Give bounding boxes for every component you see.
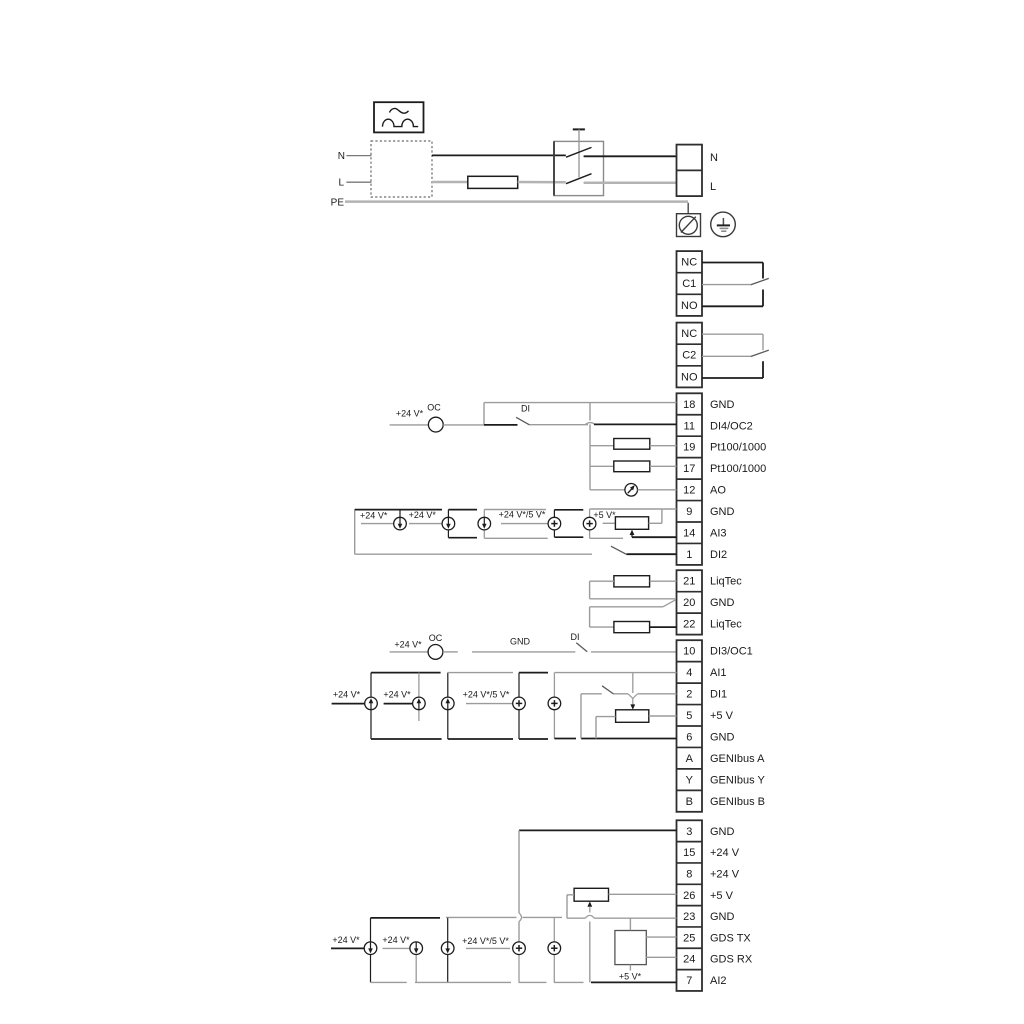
svg-text:N: N bbox=[710, 152, 718, 164]
svg-text:GENIbus A: GENIbus A bbox=[710, 753, 765, 765]
svg-text:GENIbus Y: GENIbus Y bbox=[710, 774, 765, 786]
svg-text:DI3/OC1: DI3/OC1 bbox=[710, 646, 753, 658]
svg-text:+24 V*: +24 V* bbox=[333, 690, 361, 700]
svg-text:GND: GND bbox=[710, 506, 735, 518]
svg-text:10: 10 bbox=[683, 646, 695, 658]
svg-text:4: 4 bbox=[686, 667, 692, 679]
svg-text:25: 25 bbox=[683, 932, 695, 944]
svg-text:NO: NO bbox=[681, 371, 698, 383]
svg-text:DI1: DI1 bbox=[710, 689, 727, 701]
svg-text:Y: Y bbox=[686, 774, 694, 786]
svg-text:NC: NC bbox=[681, 257, 697, 269]
svg-text:+5 V*: +5 V* bbox=[593, 510, 616, 520]
svg-text:+5 V: +5 V bbox=[710, 710, 734, 722]
svg-text:AO: AO bbox=[710, 485, 726, 497]
svg-text:+5 V*: +5 V* bbox=[619, 972, 642, 982]
svg-text:C2: C2 bbox=[682, 350, 696, 362]
svg-text:9: 9 bbox=[686, 506, 692, 518]
svg-text:21: 21 bbox=[683, 576, 695, 588]
svg-text:20: 20 bbox=[683, 597, 695, 609]
svg-text:N: N bbox=[338, 151, 345, 162]
svg-text:LiqTec: LiqTec bbox=[710, 619, 742, 631]
svg-text:+24 V*: +24 V* bbox=[360, 511, 388, 521]
svg-text:LiqTec: LiqTec bbox=[710, 576, 742, 588]
svg-text:+24 V*: +24 V* bbox=[383, 690, 411, 700]
svg-text:PE: PE bbox=[331, 198, 345, 209]
svg-text:8: 8 bbox=[686, 868, 692, 880]
svg-text:5: 5 bbox=[686, 710, 692, 722]
svg-text:+24 V*: +24 V* bbox=[396, 408, 424, 418]
svg-text:OC: OC bbox=[429, 633, 443, 643]
svg-text:+24 V*/5 V*: +24 V*/5 V* bbox=[463, 690, 510, 700]
svg-text:+24 V*: +24 V* bbox=[332, 935, 360, 945]
svg-text:+24 V: +24 V bbox=[710, 847, 740, 859]
svg-text:19: 19 bbox=[683, 442, 695, 454]
svg-text:DI: DI bbox=[571, 632, 580, 642]
svg-text:A: A bbox=[686, 753, 694, 765]
svg-text:AI2: AI2 bbox=[710, 975, 727, 987]
svg-text:GND: GND bbox=[710, 826, 735, 838]
svg-text:GND: GND bbox=[510, 636, 531, 646]
svg-text:DI: DI bbox=[521, 404, 530, 414]
svg-text:+24 V*/5 V*: +24 V*/5 V* bbox=[499, 510, 546, 520]
svg-text:12: 12 bbox=[683, 485, 695, 497]
svg-text:B: B bbox=[686, 796, 693, 808]
svg-text:GND: GND bbox=[710, 399, 735, 411]
svg-text:26: 26 bbox=[683, 890, 695, 902]
svg-text:14: 14 bbox=[683, 528, 695, 540]
svg-text:GDS RX: GDS RX bbox=[710, 954, 753, 966]
svg-text:+5 V: +5 V bbox=[710, 890, 734, 902]
svg-text:17: 17 bbox=[683, 463, 695, 475]
svg-text:+24 V*/5 V*: +24 V*/5 V* bbox=[462, 936, 509, 946]
svg-text:OC: OC bbox=[427, 402, 441, 412]
svg-text:2: 2 bbox=[686, 689, 692, 701]
svg-text:22: 22 bbox=[683, 619, 695, 631]
svg-text:GDS TX: GDS TX bbox=[710, 932, 751, 944]
svg-text:Pt100/1000: Pt100/1000 bbox=[710, 463, 766, 475]
svg-text:6: 6 bbox=[686, 732, 692, 744]
svg-text:Pt100/1000: Pt100/1000 bbox=[710, 442, 766, 454]
svg-text:1: 1 bbox=[686, 549, 692, 561]
svg-text:GND: GND bbox=[710, 732, 735, 744]
svg-text:3: 3 bbox=[686, 826, 692, 838]
svg-text:DI2: DI2 bbox=[710, 549, 727, 561]
svg-text:GND: GND bbox=[710, 597, 735, 609]
svg-text:AI3: AI3 bbox=[710, 528, 727, 540]
svg-text:C1: C1 bbox=[682, 278, 696, 290]
svg-text:11: 11 bbox=[684, 420, 695, 432]
svg-text:7: 7 bbox=[686, 975, 692, 987]
svg-text:L: L bbox=[338, 178, 344, 189]
svg-text:+24 V*: +24 V* bbox=[382, 935, 410, 945]
svg-text:NO: NO bbox=[681, 300, 698, 312]
svg-text:+24 V*: +24 V* bbox=[409, 510, 437, 520]
svg-text:24: 24 bbox=[683, 954, 695, 966]
svg-text:15: 15 bbox=[683, 847, 695, 859]
svg-text:GENIbus B: GENIbus B bbox=[710, 796, 765, 808]
svg-text:18: 18 bbox=[683, 399, 695, 411]
svg-text:GND: GND bbox=[710, 911, 735, 923]
svg-text:NC: NC bbox=[681, 328, 697, 340]
svg-text:DI4/OC2: DI4/OC2 bbox=[710, 420, 753, 432]
svg-text:+24 V: +24 V bbox=[710, 868, 740, 880]
svg-text:L: L bbox=[710, 181, 716, 193]
svg-text:+24 V*: +24 V* bbox=[394, 640, 422, 650]
svg-text:23: 23 bbox=[683, 911, 695, 923]
svg-text:AI1: AI1 bbox=[710, 667, 727, 679]
